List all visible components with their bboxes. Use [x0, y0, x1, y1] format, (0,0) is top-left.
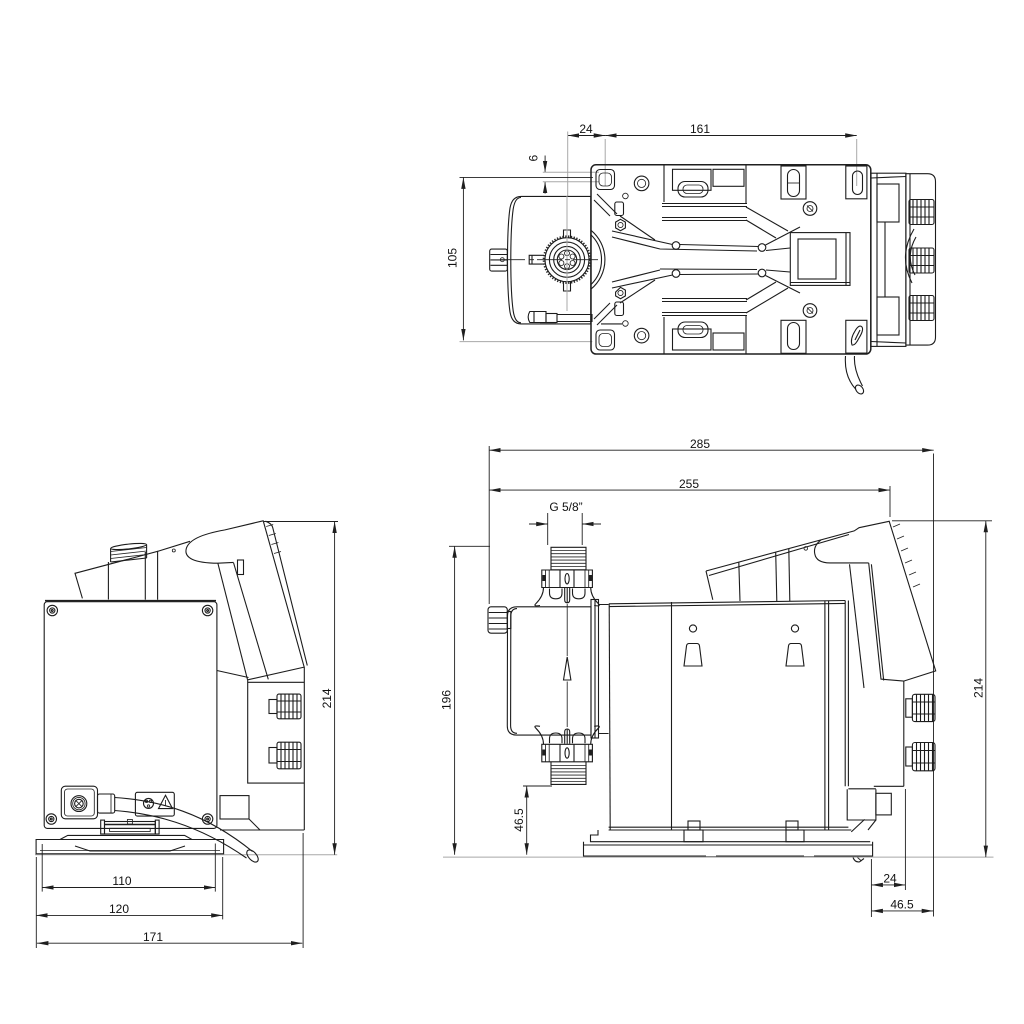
svg-text:214: 214	[320, 688, 334, 708]
svg-text:255: 255	[679, 477, 699, 491]
svg-text:105: 105	[446, 248, 460, 268]
svg-text:24: 24	[579, 122, 593, 136]
svg-text:46.5: 46.5	[890, 898, 914, 912]
svg-text:120: 120	[109, 902, 129, 916]
svg-text:214: 214	[972, 678, 986, 698]
svg-text:24: 24	[883, 872, 897, 886]
svg-text:46.5: 46.5	[512, 808, 526, 832]
svg-text:285: 285	[690, 437, 710, 451]
svg-text:196: 196	[440, 690, 454, 710]
svg-text:G 5/8”: G 5/8”	[549, 500, 582, 514]
svg-text:110: 110	[112, 874, 131, 888]
svg-text:6: 6	[527, 155, 541, 162]
svg-text:171: 171	[143, 930, 163, 944]
svg-text:161: 161	[690, 122, 710, 136]
